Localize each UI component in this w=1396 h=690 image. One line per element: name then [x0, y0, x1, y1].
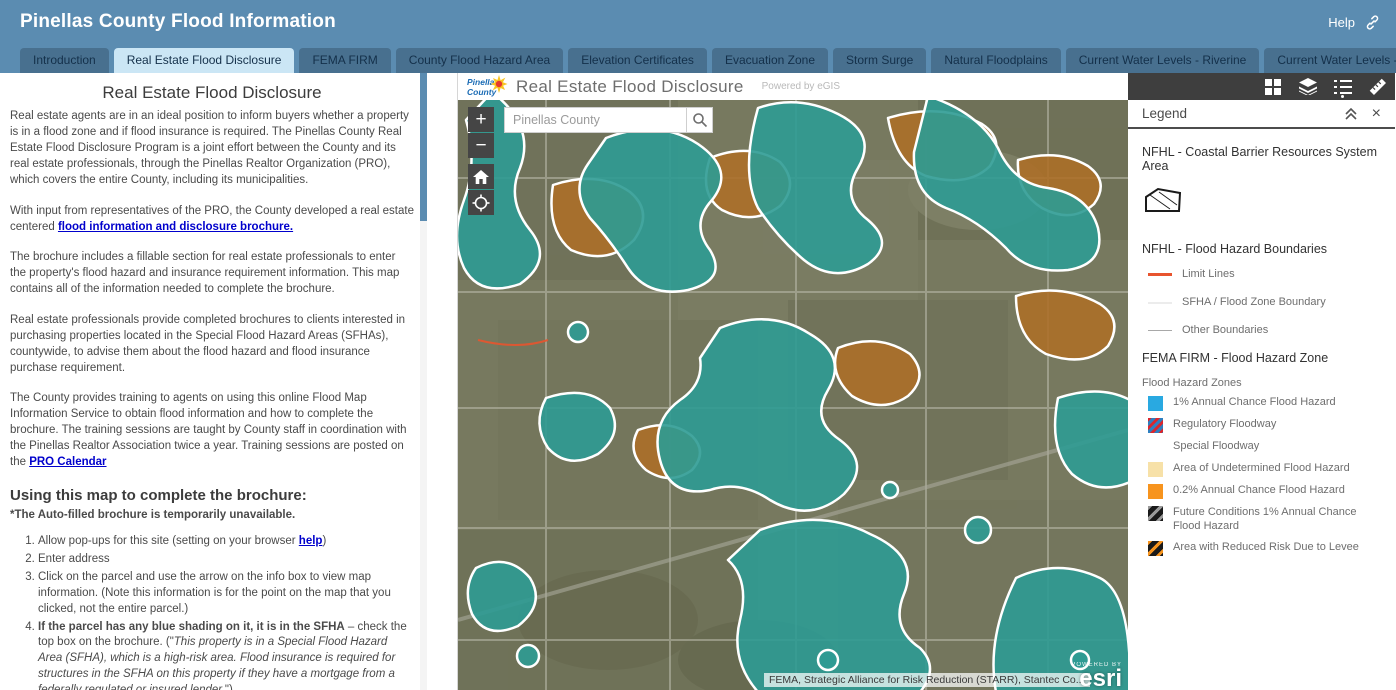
tab-county-flood-hazard-area[interactable]: County Flood Hazard Area — [396, 48, 563, 73]
sfha-boundary-swatch — [1148, 302, 1172, 304]
levee-swatch — [1148, 541, 1163, 556]
map-canvas[interactable] — [458, 100, 1128, 690]
tab-real-estate-flood-disclosure[interactable]: Real Estate Flood Disclosure — [114, 48, 295, 73]
legend-panel: Legend × NFHL - Coastal Barrier Resource… — [1128, 73, 1395, 690]
map-title: Real Estate Flood Disclosure — [516, 77, 744, 97]
flood-hazard-zones-subtitle: Flood Hazard Zones — [1142, 377, 1381, 389]
legend-item-levee: Area with Reduced Risk Due to Levee — [1142, 541, 1381, 556]
help-label[interactable]: Help — [1328, 15, 1355, 30]
panel-paragraph: The brochure includes a fillable section… — [10, 250, 414, 298]
tab-bar: Introduction Real Estate Flood Disclosur… — [0, 44, 1396, 73]
map-attribution: FEMA, Strategic Alliance for Risk Reduct… — [764, 673, 1090, 687]
search-button[interactable] — [686, 107, 713, 133]
legend-section-cbra: NFHL - Coastal Barrier Resources System … — [1142, 145, 1381, 173]
autofill-note: *The Auto-filled brochure is temporarily… — [10, 508, 414, 524]
legend-header: Legend × — [1128, 100, 1395, 129]
layers-icon — [1299, 78, 1317, 95]
special-floodway-swatch — [1148, 440, 1163, 455]
tab-natural-floodplains[interactable]: Natural Floodplains — [931, 48, 1060, 73]
1pct-swatch — [1148, 396, 1163, 411]
panel-scrollbar[interactable] — [420, 73, 427, 690]
help-link[interactable]: Help — [1328, 15, 1380, 30]
map-search — [504, 107, 713, 133]
legend-item-future-conditions: Future Conditions 1% Annual Chance Flood… — [1142, 506, 1381, 534]
collapse-icon[interactable] — [1344, 108, 1358, 120]
map-header: Pinellas County Real Estate Flood Disclo… — [458, 73, 1128, 100]
pro-calendar-link[interactable]: PRO Calendar — [29, 456, 106, 468]
brochure-link[interactable]: flood information and disclosure brochur… — [58, 221, 293, 233]
measure-button[interactable] — [1360, 73, 1395, 100]
zoom-in-button[interactable]: + — [468, 107, 494, 132]
browser-help-link[interactable]: help — [299, 535, 323, 547]
panel-paragraph: The County provides training to agents o… — [10, 391, 414, 470]
legend-title: Legend — [1142, 106, 1187, 121]
map-toolbar — [1128, 73, 1395, 100]
step-4: If the parcel has any blue shading on it… — [38, 620, 414, 690]
svg-text:County: County — [467, 87, 498, 97]
basemap-grid-icon — [1265, 79, 1281, 95]
02pct-swatch — [1148, 484, 1163, 499]
layer-list-button[interactable] — [1290, 73, 1325, 100]
panel-paragraph: Real estate agents are in an ideal posit… — [10, 109, 414, 188]
legend-body: NFHL - Coastal Barrier Resources System … — [1128, 129, 1395, 575]
legend-button[interactable] — [1325, 73, 1360, 100]
legend-item-special-floodway: Special Floodway — [1142, 440, 1381, 455]
legend-item-regulatory-floodway: Regulatory Floodway — [1142, 418, 1381, 433]
tab-introduction[interactable]: Introduction — [20, 48, 109, 73]
legend-item-undetermined: Area of Undetermined Flood Hazard — [1142, 462, 1381, 477]
search-input[interactable] — [504, 107, 686, 133]
tab-water-levels-coastal[interactable]: Current Water Levels - Coastal — [1264, 48, 1396, 73]
measure-ruler-icon — [1368, 77, 1387, 96]
instruction-steps: Allow pop-ups for this site (setting on … — [24, 534, 414, 690]
legend-item-sfha-boundary: SFHA / Flood Zone Boundary — [1148, 296, 1381, 310]
esri-wordmark: esri — [1071, 668, 1122, 690]
pinellas-county-logo: Pinellas County — [466, 75, 508, 99]
legend-section-firm: FEMA FIRM - Flood Hazard Zone — [1142, 351, 1381, 365]
link-icon — [1365, 15, 1380, 30]
page-title: Pinellas County Flood Information — [20, 11, 336, 33]
app-header: Pinellas County Flood Information Help — [0, 0, 1396, 44]
esri-logo: POWERED BY esri — [1071, 662, 1122, 690]
tab-fema-firm[interactable]: FEMA FIRM — [299, 48, 390, 73]
cbra-hatch-symbol — [1144, 187, 1182, 213]
other-boundaries-swatch — [1148, 330, 1172, 331]
map-area: Pinellas County Real Estate Flood Disclo… — [458, 73, 1128, 690]
basemap-gallery-button[interactable] — [1255, 73, 1290, 100]
undetermined-swatch — [1148, 462, 1163, 477]
future-conditions-swatch — [1148, 506, 1163, 521]
legend-item-other-boundaries: Other Boundaries — [1148, 324, 1381, 338]
using-map-heading: Using this map to complete the brochure: — [10, 486, 414, 507]
home-button[interactable] — [468, 164, 494, 189]
locate-icon — [472, 194, 490, 212]
panel-title: Real Estate Flood Disclosure — [10, 81, 414, 104]
zoom-out-button[interactable]: − — [468, 133, 494, 158]
legend-item-limit-lines: Limit Lines — [1148, 268, 1381, 282]
panel-paragraph: Real estate professionals provide comple… — [10, 313, 414, 376]
locate-button[interactable] — [468, 190, 494, 215]
tab-water-levels-riverine[interactable]: Current Water Levels - Riverine — [1066, 48, 1260, 73]
panel-paragraph: With input from representatives of the P… — [10, 204, 414, 236]
search-icon — [692, 112, 708, 128]
tab-evacuation-zone[interactable]: Evacuation Zone — [712, 48, 828, 73]
legend-active-indicator — [1341, 95, 1344, 98]
close-icon[interactable]: × — [1372, 106, 1381, 122]
step-1: Allow pop-ups for this site (setting on … — [38, 534, 414, 550]
esri-powered-by-label: POWERED BY — [1071, 662, 1122, 668]
legend-item-1pct: 1% Annual Chance Flood Hazard — [1142, 396, 1381, 411]
legend-item-02pct: 0.2% Annual Chance Flood Hazard — [1142, 484, 1381, 499]
tab-storm-surge[interactable]: Storm Surge — [833, 48, 926, 73]
limit-lines-swatch — [1148, 273, 1172, 276]
info-panel: Real Estate Flood Disclosure Real estate… — [0, 73, 458, 690]
powered-by-egis: Powered by eGIS — [762, 81, 840, 92]
panel-scrollbar-thumb[interactable] — [420, 73, 427, 221]
regulatory-floodway-swatch — [1148, 418, 1163, 433]
step-3: Click on the parcel and use the arrow on… — [38, 570, 414, 618]
legend-list-icon — [1334, 79, 1352, 95]
tab-elevation-certificates[interactable]: Elevation Certificates — [568, 48, 707, 73]
legend-section-boundaries: NFHL - Flood Hazard Boundaries — [1142, 242, 1381, 256]
step-2: Enter address — [38, 552, 414, 568]
home-icon — [473, 170, 489, 184]
